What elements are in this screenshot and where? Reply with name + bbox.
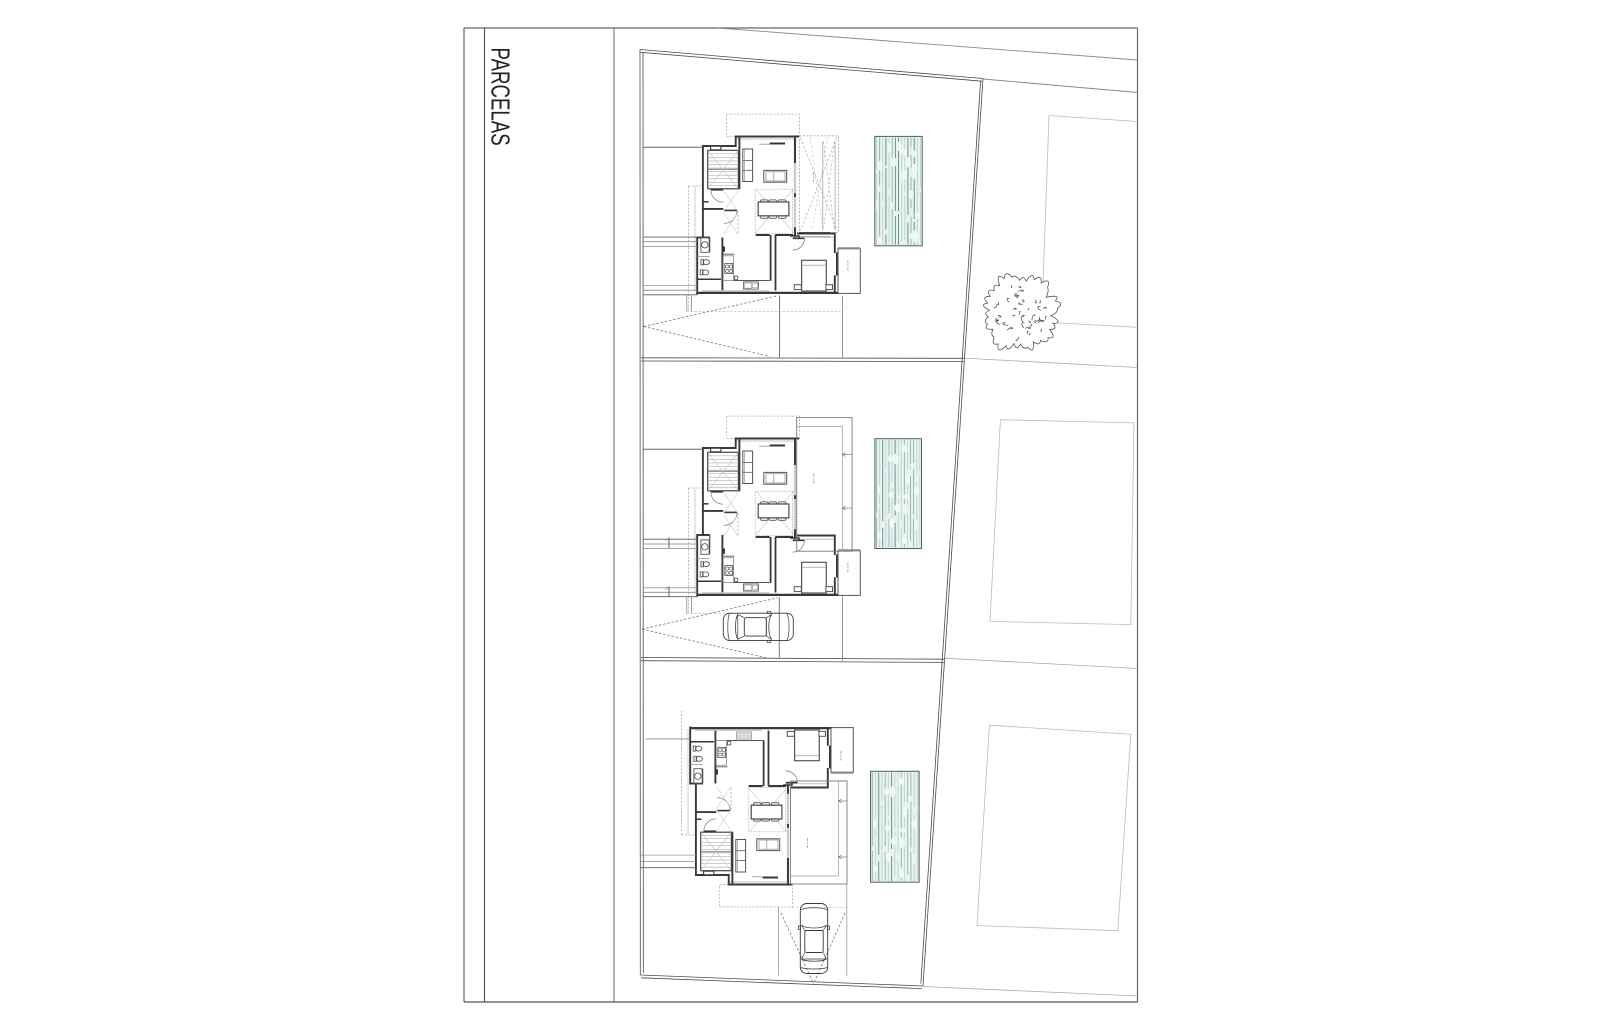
svg-text:PARCELAS: PARCELAS [486,48,516,146]
